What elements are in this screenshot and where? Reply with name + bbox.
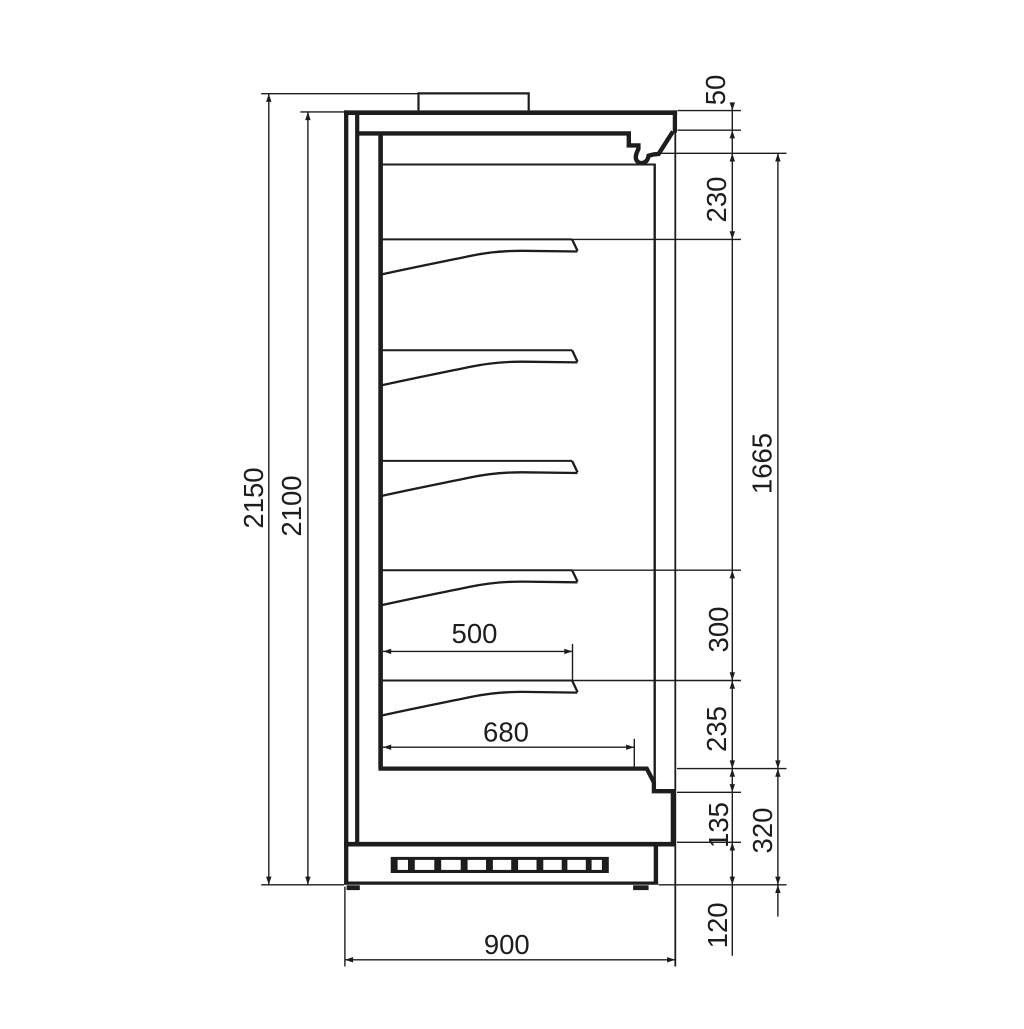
svg-text:120: 120 xyxy=(702,902,733,948)
svg-text:300: 300 xyxy=(703,607,734,653)
svg-text:135: 135 xyxy=(703,802,734,848)
svg-text:50: 50 xyxy=(700,75,731,106)
svg-text:1665: 1665 xyxy=(747,433,778,494)
svg-text:320: 320 xyxy=(747,808,778,854)
svg-text:230: 230 xyxy=(701,177,732,223)
svg-text:2150: 2150 xyxy=(238,467,269,528)
svg-text:235: 235 xyxy=(701,706,732,752)
svg-text:500: 500 xyxy=(452,618,498,649)
svg-text:680: 680 xyxy=(483,716,529,747)
svg-text:2100: 2100 xyxy=(276,475,307,536)
svg-text:900: 900 xyxy=(484,929,530,960)
